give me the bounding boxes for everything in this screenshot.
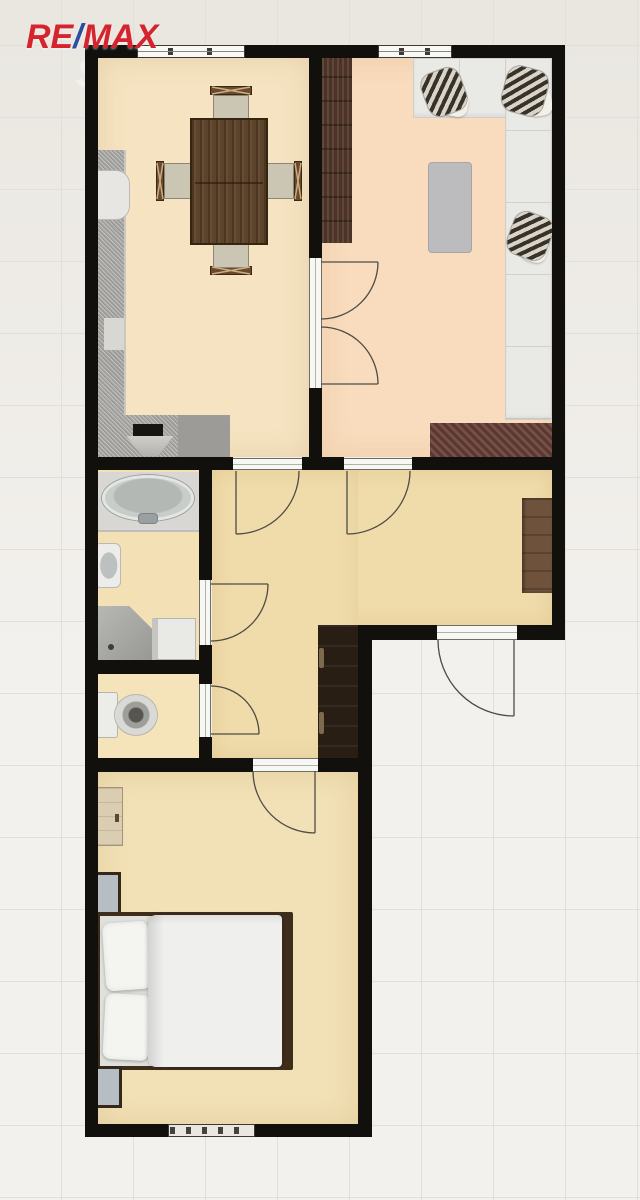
wall-top-c — [452, 45, 565, 58]
threshold-entrance-door — [437, 625, 517, 640]
wall-hall-top-b — [302, 457, 344, 470]
kitchen-counter-segment — [104, 318, 124, 350]
remax-logo-max: MAX — [83, 18, 159, 56]
chair-top — [213, 95, 249, 120]
remax-logo-re: RE — [26, 18, 73, 56]
wall-bath-wc-divider — [85, 660, 212, 674]
bedroom-mirror-1 — [94, 872, 121, 915]
wall-divider-upper — [309, 45, 322, 258]
wall-bedroom-bottom-b — [255, 1124, 372, 1137]
threshold-bathroom-door — [199, 580, 211, 645]
threshold-bedroom-door — [253, 758, 318, 772]
wall-right-upper — [552, 45, 565, 640]
window-living — [378, 45, 452, 58]
bathroom-washbasin — [94, 543, 121, 588]
living-wardrobe — [322, 52, 352, 243]
washing-machine — [152, 618, 196, 660]
threshold-dining-door — [233, 458, 302, 470]
hall-wardrobe-handle-2 — [319, 712, 324, 734]
bed-pillow-1 — [102, 920, 153, 991]
chair-right — [267, 163, 294, 199]
floorplan-image: Sreality.cz — [0, 0, 640, 1200]
dining-table — [190, 118, 268, 245]
chair-bottom — [213, 244, 249, 268]
remax-logo: RE/MAX — [26, 18, 158, 57]
toilet-bowl — [114, 694, 158, 736]
wall-bedroom-bottom-a — [85, 1124, 168, 1137]
hall-wardrobe — [318, 625, 358, 768]
wall-bath-right-a — [199, 470, 212, 580]
wall-bedroom-top-a — [85, 758, 253, 772]
kitchen-worktop — [178, 415, 230, 457]
remax-logo-slash: / — [73, 18, 82, 56]
bathtub-faucet — [139, 514, 157, 523]
hall-wardrobe-handle-1 — [319, 648, 324, 668]
threshold-living-door — [344, 458, 412, 470]
chair-back-left — [156, 161, 164, 201]
threshold-double-door — [309, 258, 322, 388]
wall-left — [85, 45, 98, 1137]
wall-bedroom-right — [358, 625, 372, 1137]
bed-pillow-2 — [102, 993, 151, 1061]
window-bedroom-radiator — [168, 1124, 255, 1137]
wall-hall-top-a — [85, 457, 233, 470]
kitchen-cooktop — [133, 424, 163, 436]
threshold-wc-door — [199, 684, 211, 737]
wall-bedroom-top-b — [318, 758, 372, 772]
coffee-table — [428, 162, 472, 253]
wall-hall-bottom-b — [517, 625, 565, 640]
hall-cabinet — [522, 498, 552, 593]
chair-left — [164, 163, 191, 199]
chair-back-top — [210, 86, 252, 95]
wall-hall-top-c — [412, 457, 565, 470]
bed-duvet — [148, 915, 282, 1067]
chair-back-right — [294, 161, 302, 201]
